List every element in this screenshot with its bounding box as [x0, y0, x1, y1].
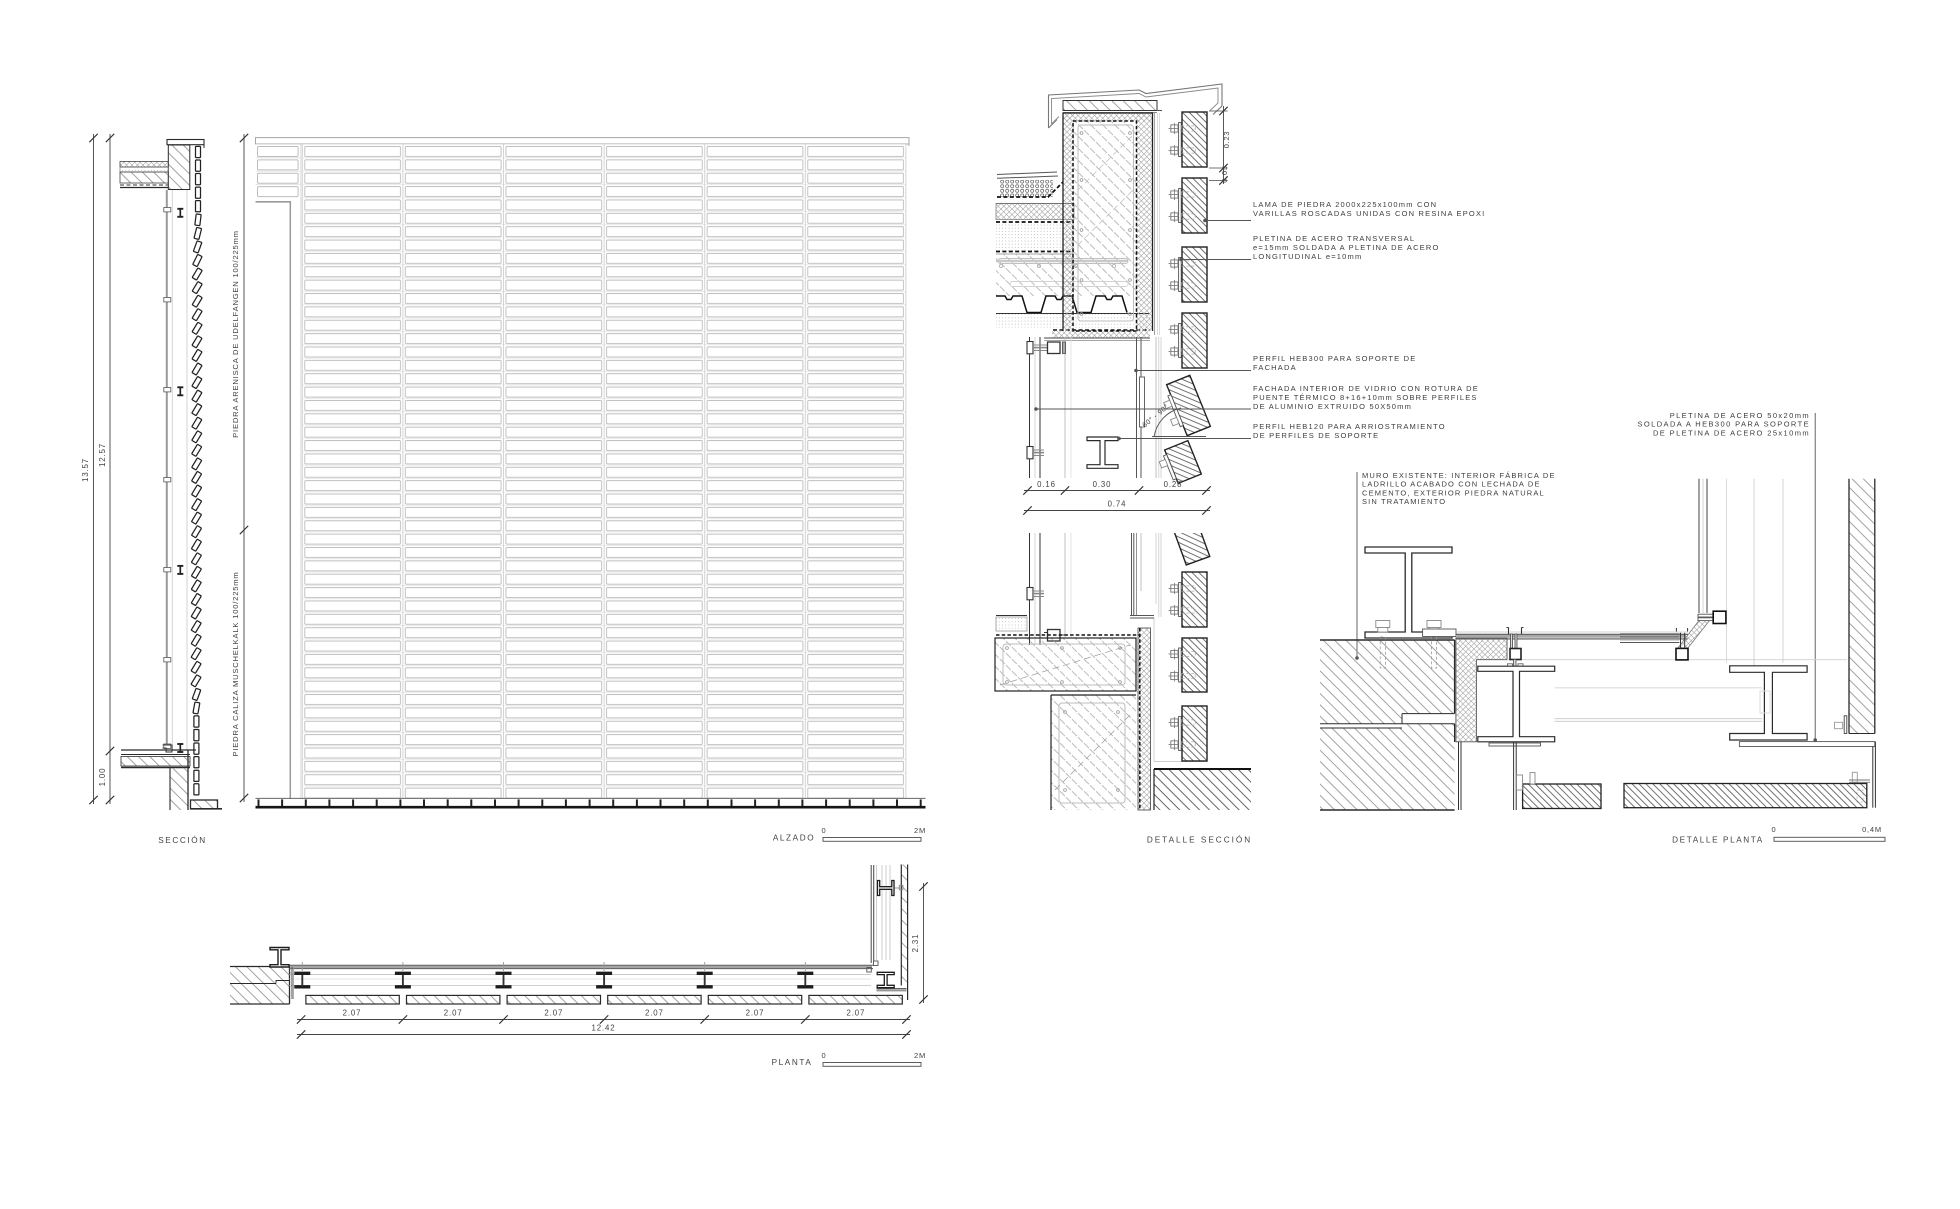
svg-text:12.42: 12.42	[591, 1024, 615, 1033]
svg-text:12.57: 12.57	[98, 443, 107, 467]
svg-text:DE PERFILES DE SOPORTE: DE PERFILES DE SOPORTE	[1253, 431, 1379, 440]
svg-text:0.74: 0.74	[1108, 500, 1127, 509]
svg-text:2M: 2M	[914, 826, 926, 835]
svg-text:2.07: 2.07	[544, 1009, 563, 1018]
svg-text:DETALLE SECCIÓN: DETALLE SECCIÓN	[1147, 835, 1252, 845]
svg-text:0.05: 0.05	[1220, 165, 1229, 183]
svg-text:LADRILLO ACABADO CON LECHADA D: LADRILLO ACABADO CON LECHADA DE	[1362, 480, 1541, 489]
svg-text:PUENTE TÉRMICO 8+16+10mm SOBRE: PUENTE TÉRMICO 8+16+10mm SOBRE PERFILES	[1253, 393, 1478, 402]
svg-text:0.16: 0.16	[1037, 480, 1056, 489]
svg-text:2M: 2M	[914, 1051, 926, 1060]
svg-text:1.00: 1.00	[98, 768, 107, 787]
svg-text:CEMENTO, EXTERIOR PIEDRA NATUR: CEMENTO, EXTERIOR PIEDRA NATURAL	[1362, 488, 1545, 497]
svg-text:13.57: 13.57	[81, 458, 90, 482]
svg-text:PLANTA: PLANTA	[772, 1058, 813, 1067]
svg-text:SOLDADA A HEB300 PARA SOPORTE: SOLDADA A HEB300 PARA SOPORTE	[1638, 420, 1810, 429]
svg-text:VARILLAS ROSCADAS UNIDAS CON R: VARILLAS ROSCADAS UNIDAS CON RESINA EPOX…	[1253, 209, 1485, 218]
svg-text:MURO EXISTENTE: INTERIOR FÁBRI: MURO EXISTENTE: INTERIOR FÁBRICA DE	[1362, 471, 1556, 480]
svg-text:0: 0	[822, 826, 827, 835]
svg-text:LONGITUDINAL e=10mm: LONGITUDINAL e=10mm	[1253, 252, 1362, 261]
svg-text:PERFIL HEB120 PARA ARRIOSTRAMI: PERFIL HEB120 PARA ARRIOSTRAMIENTO	[1253, 422, 1446, 431]
svg-text:0.30: 0.30	[1093, 480, 1112, 489]
svg-text:2.07: 2.07	[847, 1009, 866, 1018]
svg-text:SECCIÓN: SECCIÓN	[158, 835, 207, 845]
svg-text:0,4M: 0,4M	[1862, 825, 1882, 834]
svg-text:DETALLE PLANTA: DETALLE PLANTA	[1672, 836, 1764, 845]
svg-text:PERFIL HEB300 PARA SOPORTE DE: PERFIL HEB300 PARA SOPORTE DE	[1253, 354, 1416, 363]
svg-text:DE PLETINA DE ACERO 25x10mm: DE PLETINA DE ACERO 25x10mm	[1653, 428, 1810, 437]
svg-text:0.23: 0.23	[1222, 131, 1231, 149]
svg-text:PIEDRA CALIZA MUSCHELKALK 1: PIEDRA CALIZA MUSCHELKALK 100/225mm	[231, 572, 240, 757]
svg-text:PLETINA DE ACERO TRANSVERSAL: PLETINA DE ACERO TRANSVERSAL	[1253, 234, 1415, 243]
svg-text:2.31: 2.31	[911, 934, 920, 953]
svg-text:PIEDRA ARENISCA DE UDELFANG: PIEDRA ARENISCA DE UDELFANGEN 100/225mm	[231, 230, 240, 438]
svg-text:DE ALUMINIO EXTRUIDO 50X50mm: DE ALUMINIO EXTRUIDO 50X50mm	[1253, 402, 1412, 411]
svg-text:FACHADA: FACHADA	[1253, 363, 1297, 372]
svg-text:0: 0	[1772, 825, 1777, 834]
svg-text:2.07: 2.07	[746, 1009, 765, 1018]
svg-text:2.07: 2.07	[444, 1009, 463, 1018]
svg-text:SIN TRATAMIENTO: SIN TRATAMIENTO	[1362, 497, 1446, 506]
svg-text:PLETINA DE ACERO 50x20mm: PLETINA DE ACERO 50x20mm	[1670, 411, 1810, 420]
svg-text:2.07: 2.07	[343, 1009, 362, 1018]
svg-text:2.07: 2.07	[645, 1009, 664, 1018]
svg-text:0: 0	[822, 1051, 827, 1060]
svg-text:LAMA DE PIEDRA 2000x225x100mm: LAMA DE PIEDRA 2000x225x100mm CON	[1253, 200, 1437, 209]
svg-text:0.28: 0.28	[1164, 480, 1183, 489]
svg-text:FACHADA INTERIOR DE VIDRIO CON: FACHADA INTERIOR DE VIDRIO CON ROTURA DE	[1253, 384, 1479, 393]
svg-text:e=15mm SOLDADA A PLETINA DE AC: e=15mm SOLDADA A PLETINA DE ACERO	[1253, 243, 1440, 252]
svg-text:ALZADO: ALZADO	[773, 834, 815, 843]
